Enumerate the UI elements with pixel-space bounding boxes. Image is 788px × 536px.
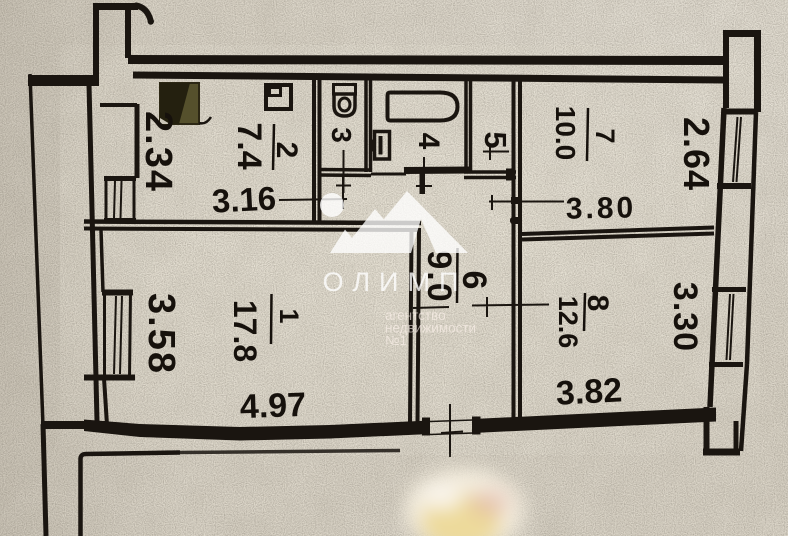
svg-text:3: 3 (326, 127, 357, 143)
svg-text:2: 2 (270, 142, 303, 159)
svg-text:4.97: 4.97 (239, 386, 306, 426)
svg-text:3.82: 3.82 (555, 371, 623, 412)
svg-text:ОЛИМП: ОЛИМП (323, 267, 468, 297)
svg-text:3.16: 3.16 (211, 179, 277, 219)
svg-text:17.8: 17.8 (227, 300, 263, 362)
svg-text:8: 8 (581, 295, 614, 312)
svg-text:12.6: 12.6 (553, 296, 583, 349)
svg-text:10.0: 10.0 (550, 106, 581, 161)
svg-text:7.4: 7.4 (230, 122, 268, 169)
svg-text:5: 5 (478, 131, 513, 148)
svg-text:3.30: 3.30 (666, 282, 704, 352)
svg-text:1: 1 (274, 308, 304, 323)
svg-text:4: 4 (412, 133, 445, 150)
svg-text:3.80: 3.80 (566, 191, 637, 225)
svg-text:2.64: 2.64 (676, 117, 717, 191)
svg-text:№1: №1 (385, 333, 407, 348)
svg-text:3.58: 3.58 (140, 293, 182, 375)
svg-text:7: 7 (590, 128, 620, 143)
svg-text:2.34: 2.34 (137, 111, 179, 193)
